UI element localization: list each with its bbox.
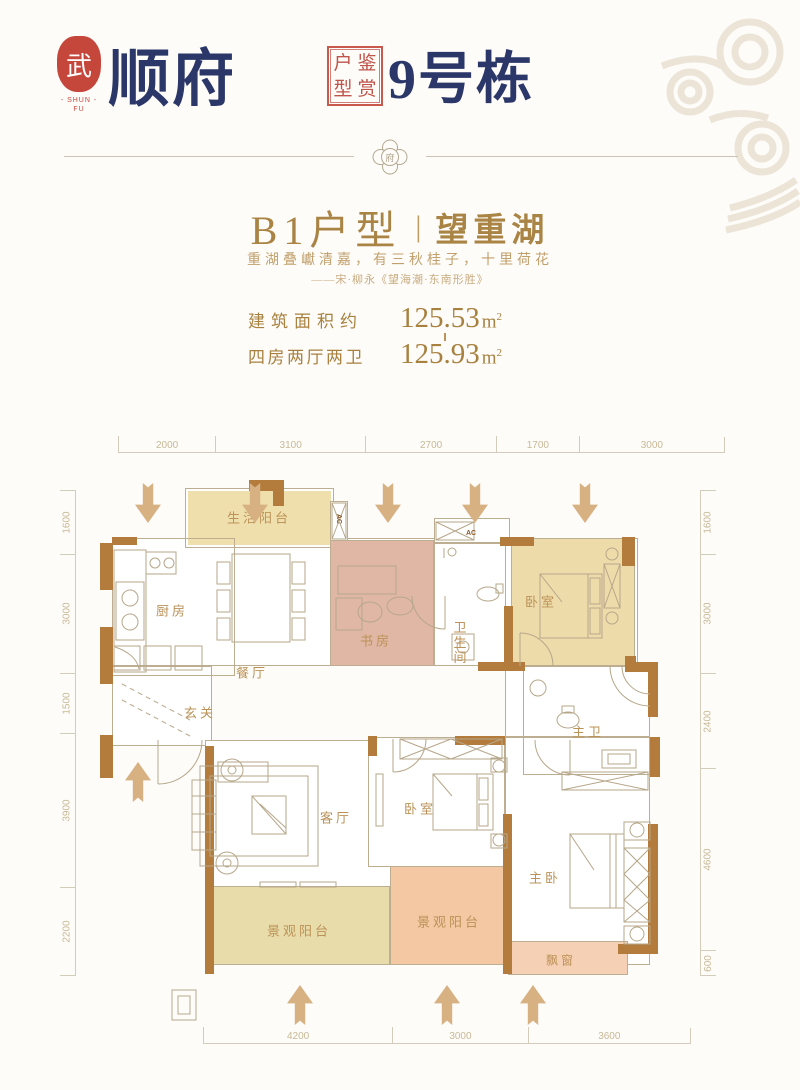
spec-label: 建筑面积约 <box>248 307 400 332</box>
building-number: 9号栋 <box>388 34 534 115</box>
dimension-value: 2200 <box>60 887 75 976</box>
dimension-value: 1500 <box>60 673 75 733</box>
dimension-row-bottom: 4200 3000 3600 <box>203 1028 691 1044</box>
dimension-value: 3000 <box>701 554 716 673</box>
stamp-char: 户 <box>333 54 352 73</box>
unit-name: B1户型 <box>251 198 402 256</box>
dimension-column-left: 1600 3000 1500 3900 2200 <box>60 490 76 976</box>
room-label-bay-window: 飘窗 <box>546 952 576 969</box>
room-label-landscape-balcony-1: 景观阳台 <box>267 921 331 940</box>
dimension-value: 3600 <box>528 1027 690 1043</box>
dimension-value: 1600 <box>701 490 716 554</box>
spec-row-layout: 四房两厅两卫 125.93 m2 <box>248 338 568 374</box>
stamp-char: 型 <box>333 80 352 99</box>
dimension-value: 3000 <box>392 1027 527 1043</box>
stamp-huxing-jianshang: 户 鉴 型 赏 <box>327 46 383 106</box>
stamp-char: 赏 <box>357 80 376 99</box>
poem-source: ——宋·柳永《望海潮·东南形胜》 <box>0 271 800 287</box>
ac-label: AC <box>335 514 342 524</box>
room-label-dining: 餐厅 <box>236 663 268 682</box>
dimension-value: 2400 <box>701 673 716 768</box>
brand-seal-icon: 武 <box>57 36 101 92</box>
room-label-bedroom1: 卧室 <box>525 592 557 611</box>
room-label-bedroom2: 卧室 <box>404 799 436 818</box>
unit-title-row: B1户型 | 望重湖 <box>0 198 800 256</box>
room-label-bathroom: 卫生间 <box>450 621 469 666</box>
dimension-value: 3000 <box>60 554 75 673</box>
spec-unit: m2 <box>482 347 502 369</box>
room-label-study: 书房 <box>360 631 392 650</box>
spec-value: 125.53 <box>400 302 480 335</box>
emblem-character: 府 <box>372 139 408 175</box>
room-label-master-bedroom: 主卧 <box>529 868 561 887</box>
spec-value: 125.93 <box>400 338 480 371</box>
dimension-value: 600 <box>701 950 716 976</box>
dimension-value: 2000 <box>118 436 215 452</box>
spec-row-area: 建筑面积约 125.53 m2 <box>248 302 568 338</box>
spec-block: 建筑面积约 125.53 m2 四房两厅两卫 125.93 m2 <box>248 302 568 374</box>
poem-line: 重湖叠巘清嘉，有三秋桂子，十里荷花 <box>0 249 800 269</box>
spec-unit: m2 <box>482 311 502 333</box>
dimension-value: 1700 <box>496 436 579 452</box>
divider-line <box>64 156 354 157</box>
view-name: 望重湖 <box>435 203 549 251</box>
divider-line <box>426 156 738 157</box>
dimension-row-top: 2000 3100 2700 1700 3000 <box>118 437 725 453</box>
dimension-value: 3900 <box>60 733 75 887</box>
dimension-column-right: 1600 3000 2400 4600 600 <box>700 490 716 976</box>
dimension-value: 4600 <box>701 768 716 950</box>
floorplan-flyer: 武 - SHUN - FU 顺府 户 鉴 型 赏 9号栋 府 B1户型 | 望重… <box>0 0 800 1090</box>
seal-caption: - SHUN - FU <box>47 96 111 114</box>
room-label-landscape-balcony-2: 景观阳台 <box>417 912 481 931</box>
dimension-value: 2700 <box>365 436 496 452</box>
dimension-value: 4200 <box>203 1027 392 1043</box>
brand-name: 顺府 <box>108 28 236 118</box>
divider-emblem: 府 <box>372 139 408 175</box>
stamp-char: 鉴 <box>357 54 376 73</box>
range-mark <box>444 333 446 341</box>
dimension-value: 3000 <box>579 436 724 452</box>
room-label-foyer: 玄关 <box>184 703 216 722</box>
title-separator: | <box>415 210 421 244</box>
dimension-value: 3100 <box>215 436 365 452</box>
dimension-value: 1600 <box>60 490 75 554</box>
room-label-kitchen: 厨房 <box>156 601 188 620</box>
room-label-living: 客厅 <box>320 808 352 827</box>
ac-label: AC <box>466 530 476 537</box>
seal-character: 武 <box>66 46 92 83</box>
room-label-master-bath: 主卫 <box>572 722 604 741</box>
spec-label: 四房两厅两卫 <box>248 343 400 368</box>
